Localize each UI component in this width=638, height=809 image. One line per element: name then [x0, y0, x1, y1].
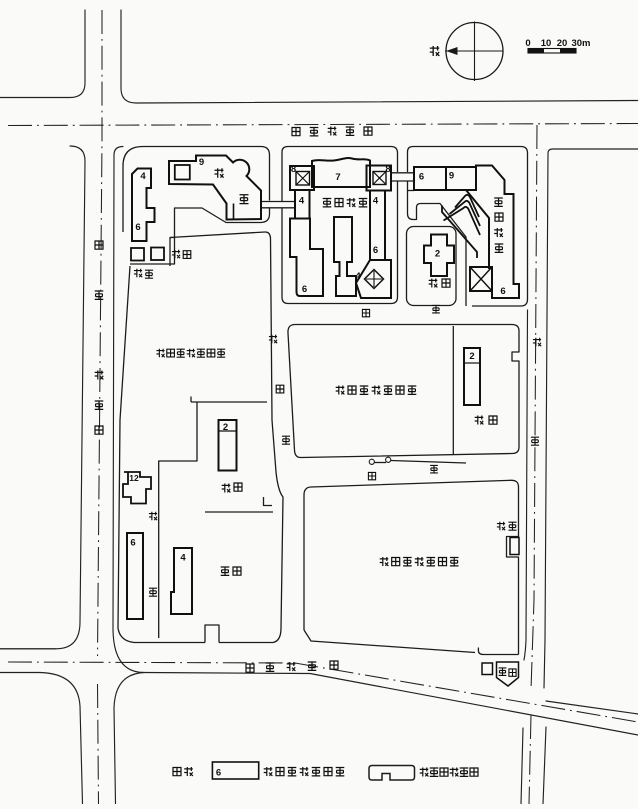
svg-text:2: 2	[469, 351, 474, 362]
svg-text:6: 6	[419, 172, 424, 183]
svg-text:0: 0	[525, 38, 530, 49]
svg-text:4: 4	[299, 196, 305, 207]
svg-text:8: 8	[291, 164, 296, 175]
svg-text:7: 7	[335, 172, 340, 183]
svg-text:9: 9	[199, 157, 204, 168]
svg-text:9: 9	[449, 171, 454, 182]
svg-text:2: 2	[435, 249, 440, 260]
svg-text:6: 6	[216, 768, 221, 779]
svg-text:6: 6	[130, 538, 135, 549]
svg-text:4: 4	[373, 196, 379, 207]
svg-text:2: 2	[223, 422, 228, 433]
svg-text:4: 4	[355, 271, 361, 282]
svg-text:12: 12	[129, 473, 139, 483]
svg-text:6: 6	[302, 284, 307, 295]
svg-text:6: 6	[373, 245, 378, 256]
svg-text:10: 10	[541, 38, 552, 49]
svg-text:30m: 30m	[571, 38, 590, 49]
svg-text:8: 8	[385, 164, 390, 175]
svg-text:20: 20	[557, 38, 568, 49]
svg-text:6: 6	[135, 222, 140, 233]
svg-text:4: 4	[140, 171, 146, 182]
svg-text:6: 6	[500, 286, 505, 297]
svg-text:4: 4	[180, 553, 186, 564]
